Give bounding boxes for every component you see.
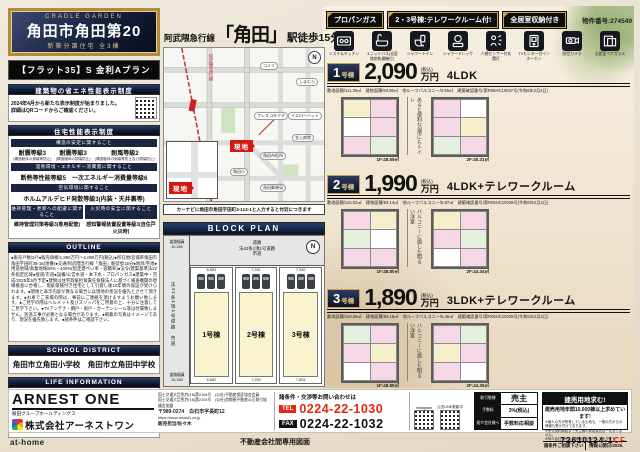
energy-section-body: 2024年4月から新たな表示制度が始まりました。 詳細はQRコードからご確認くだ…	[8, 95, 160, 122]
flat35-banner: 【フラット35】S 金利Aプラン	[8, 60, 160, 80]
car-icon	[307, 274, 315, 289]
athome-logo: at-home	[10, 438, 45, 447]
floorplan-1f	[341, 209, 399, 269]
floorplan-1f	[341, 97, 399, 157]
feature-badges-row: プロパンガス 2・3号棟:テレワークルーム付! 全居室収納付き 物件番号:274…	[327, 12, 632, 28]
car-icon	[207, 274, 215, 289]
lot-3: 7,340 3号棟 7,804	[279, 267, 322, 384]
shower-toilet-icon	[410, 31, 430, 51]
road-width-bottom: 道路幅員 10,260	[165, 373, 189, 382]
north-arrow-icon: N	[306, 240, 320, 254]
unit-1-badge: 1号棟	[327, 63, 360, 82]
map-landmark: フレスコキクチ	[254, 112, 288, 120]
company-address: 〒989-0274 白石市字長町12	[158, 409, 270, 416]
unit-3-note: バルコニーに面した明るい洋室	[407, 323, 423, 381]
company-group: 飯田グループホールディングス	[12, 411, 154, 417]
unit-1-area-2f: 2F:45.31㎡	[431, 157, 489, 163]
contact-block: 諸条件・交渉等お問い合わせは TEL 0224-22-1030 FAX 0224…	[274, 392, 410, 430]
unit-2-listing: 2号棟 1,990 (税込) 万円 4LDK+テレワークルーム 敷地面積/115…	[327, 174, 630, 275]
broker-value: 手数料応相談	[501, 418, 537, 429]
grade-seismic-2: 耐震等級3	[56, 148, 91, 157]
badge-storage: 全居室収納付き	[503, 12, 566, 28]
page-title: 角田市角田第20	[13, 20, 155, 41]
road-width-top: 道路幅員 10,260	[165, 240, 189, 249]
map-caption: カーナビに角田市角田字田町3-113-1と入力すると付近につきます	[163, 204, 325, 215]
line-label: 公式LINE更新中	[437, 405, 463, 410]
energy-section-header: 建築物の省エネ性能表示制度	[8, 84, 160, 95]
license-line-2: 国土交通大臣免許(16)第2104号 (公社)首都圏不動産公正取引協議会加盟	[158, 398, 270, 409]
sensor-light-icon	[486, 31, 506, 51]
unit-2-header: 2号棟 1,990 (税込) 万円 4LDK+テレワークルーム	[327, 174, 630, 199]
company-logo: ARNEST ONE	[12, 392, 154, 410]
grade-seismic-2-sub: (構造躯体の損傷防止)	[56, 157, 91, 162]
footer-band: ARNEST ONE 飯田グループホールディングス 株式会社アーネストワン 国土…	[8, 389, 632, 433]
tv-interphone-icon	[524, 31, 544, 51]
document-code: 72610124-1CF	[561, 436, 626, 445]
unit-1-listing: 1号棟 2,090 (税込) 万円 4LDK 敷地面積/111.35㎡ 建物面積…	[327, 62, 630, 163]
floorplan-2f	[431, 97, 489, 157]
floorplan-2f	[431, 209, 489, 269]
unit-3-listing: 3号棟 1,890 (税込) 万円 3LDK+テレワークルーム 敷地面積/119…	[327, 288, 630, 389]
property-title-box: CRADLE GARDEN 角田市角田第20 新築分譲住宅 全3棟	[8, 8, 160, 56]
rail-line-label: 阿武隈急行線	[208, 54, 214, 81]
map-landmark: しまむら	[296, 78, 318, 86]
fee-label: 手数料	[475, 405, 501, 416]
grade-maintenance: 維持管理対策等級3(専用配管)	[11, 220, 83, 236]
grade-insulation: 断熱等性能等級5 一次エネルギー消費量等級6	[11, 172, 157, 183]
outline-text: ●販売戸数/3戸●販売価格/1,890万円〜2,090万円(税込)●所在地/宮城…	[11, 255, 157, 339]
broker-label: 紹介会社様へ	[475, 418, 501, 429]
unit-3-floorplans: 1F:48.80㎡ バルコニーに面した明るい洋室 2F:44.35㎡	[327, 323, 630, 389]
badge-telework: 2・3号棟:テレワークルーム付!	[388, 12, 498, 28]
unit-1-header: 1号棟 2,090 (税込) 万円 4LDK	[327, 62, 630, 87]
map-landmark: コメリ	[260, 62, 278, 70]
unit-1-layout: 4LDK	[443, 70, 478, 82]
company-legal-block: 国土交通大臣免許(16)第2106号 (公社)不動産保証協会会員 国土交通大臣免…	[158, 392, 270, 430]
fax-label: FAX	[279, 420, 297, 428]
performance-sub4b: 火災時の安全に関すること	[85, 205, 157, 219]
unit-1-area-1f: 1F:48.65㎡	[341, 157, 399, 163]
instagram-label: Instagram	[414, 406, 434, 410]
lot-dim-bottom: 7,250	[236, 378, 277, 383]
car-icon	[297, 274, 305, 289]
lot-building-label: 2号棟	[239, 292, 274, 377]
qr-block: Instagram 公式LINE更新中	[414, 392, 470, 430]
rail-line-name: 阿武隈急行線	[164, 32, 215, 47]
fee-value: 3%(税込)	[501, 405, 537, 416]
performance-sub4a: 維持管理・更新への配慮に関すること	[11, 205, 83, 219]
land-recruit-box: 建売用地求む! 建売用地年間10,000棟以上求めています! ※個人の方が所有し…	[542, 392, 628, 430]
unit-3-layout: 3LDK+テレワークルーム	[443, 292, 576, 308]
pair-glass-icon	[600, 31, 620, 51]
car-icon	[262, 274, 270, 289]
tel-label: TEL	[279, 405, 296, 413]
tel-number: 0224-22-1030	[299, 402, 383, 416]
station-headline: 阿武隈急行線 「角田」 駅徒歩15分	[164, 20, 339, 47]
lot-building-label: 1号棟	[194, 292, 229, 377]
floorplan-1f	[341, 323, 399, 383]
line-qr-icon	[440, 410, 460, 430]
life-section-header: LIFE INFORMATION	[8, 377, 160, 388]
unit-bath-icon	[372, 31, 392, 51]
sales-staff: 販売担当/佐々木	[158, 421, 270, 427]
performance-sub1: 構造の安定に関すること	[11, 139, 157, 147]
page-subtitle: 新築分譲住宅 全3棟	[13, 41, 155, 50]
badge-propane: プロパンガス	[327, 12, 383, 28]
car-icon	[252, 274, 260, 289]
school-names: 角田市立角田小学校 角田市立角田中学校	[8, 356, 160, 374]
access-map: 阿武隈急行線 コメリ しまむら フレスコキクチ イエローハット 角田市役所 金上…	[163, 47, 325, 202]
qr-code-icon	[135, 97, 157, 119]
company-name: 株式会社アーネストワン	[25, 418, 134, 432]
instagram-qr-icon	[414, 410, 434, 430]
grade-seismic-1: 耐震等級3	[13, 148, 51, 157]
recruit-lead: 建売用地年間10,000棟以上求めています!	[543, 405, 627, 420]
map-landmark: 角田市役所	[260, 152, 286, 160]
unit-1-price: 2,090	[364, 62, 417, 82]
property-number: 物件番号:274549	[582, 15, 632, 25]
unit-1-price-unit: (税込) 万円	[421, 68, 439, 82]
left-column: CRADLE GARDEN 角田市角田第20 新築分譲住宅 全3棟 【フラット3…	[8, 8, 160, 438]
system-kitchen-icon	[334, 31, 354, 51]
unit-2-price-unit: (税込) 万円	[421, 180, 439, 194]
grade-fire: 感知警報装置設置等級3(自住戸火災時)	[85, 220, 157, 236]
outline-section-header: OUTLINE	[8, 242, 160, 253]
fax-number: 0224-22-1032	[300, 417, 384, 431]
car-icon	[242, 274, 250, 289]
lot-dim-bottom: 7,804	[280, 378, 321, 383]
lot-building-label: 3号棟	[283, 292, 318, 377]
feature-kitchen: システムキッチン	[327, 31, 361, 61]
unit-2-details: 敷地面積/115.02㎡ 建物面積/93.14㎡ 他ルーフバルコニー/5.87㎡…	[327, 199, 630, 207]
car-icon	[287, 274, 295, 289]
unit-3-price-unit: (税込) 万円	[421, 294, 439, 308]
blockplan-header: BLOCK PLAN	[163, 222, 325, 235]
unit-3-header: 3号棟 1,890 (税込) 万円 3LDK+テレワークルーム	[327, 288, 630, 313]
dealer-type-value: 売主	[501, 393, 537, 404]
feature-sensor-light: 人感センサー付玄関灯	[479, 31, 513, 61]
internal-use-note: 不動産会社間専用図面	[240, 437, 310, 447]
unit-2-area-1f: 1F:48.80㎡	[341, 269, 399, 275]
inset-road	[167, 172, 217, 178]
performance-section-body: 構造の安定に関すること 耐震等級3 (構造躯体の倒壊等防止) 耐震等級3 (構造…	[8, 136, 160, 239]
company-block: ARNEST ONE 飯田グループホールディングス 株式会社アーネストワン	[12, 392, 154, 430]
car-icon	[217, 274, 225, 289]
school-section-header: SCHOOL DISTRICT	[8, 345, 160, 356]
feature-security-camera: 防犯カメラ	[555, 31, 589, 61]
dealer-type-label: 取引態様	[475, 393, 501, 404]
map-landmark: 角田小	[230, 168, 248, 176]
grade-wind-sub: (構造躯体の倒壊等防止及び損傷防止)	[95, 157, 155, 162]
lot-1: 6,883 1号棟 6,882	[190, 267, 233, 384]
map-landmark: イエローハット	[288, 112, 322, 120]
floorplan-2f	[431, 323, 489, 383]
grade-seismic-1-sub: (構造躯体の倒壊等防止)	[13, 157, 51, 162]
grade-wind: 耐風等級2	[95, 148, 155, 157]
unit-3-details: 敷地面積/119.06㎡ 建物面積/93.15㎡ 他ルーフバルコニー/5.46㎡…	[327, 313, 630, 321]
lot-2: 7,261 2号棟 7,250	[235, 267, 278, 384]
unit-2-area-2f: 2F:44.34㎡	[431, 269, 489, 275]
unit-2-note: バルコニーに面した明るい洋室	[407, 209, 423, 267]
feature-shower-toilet: シャワートイレ	[403, 31, 437, 61]
map-inset: 現地	[166, 141, 218, 199]
unit-3-badge: 3号棟	[327, 289, 360, 308]
map-landmark: 金上病院	[292, 134, 314, 142]
site-marker-inset: 現地	[169, 182, 192, 194]
road-left-label: 法42条1項1号道路 市道	[170, 282, 176, 347]
station-name: 「角田」	[215, 20, 287, 47]
shower-dresser-icon	[448, 31, 468, 51]
unit-1-details: 敷地面積/111.35㎡ 建物面積/93.96㎡ 他ルーフバルコニー/4.56㎡…	[327, 87, 630, 95]
unit-3-price: 1,890	[364, 288, 417, 308]
car-icon	[197, 274, 205, 289]
security-camera-icon	[562, 31, 582, 51]
grade-air: ホルムアルデヒド発散等級3(内装・天井裏等)	[11, 193, 157, 204]
unit-2-price: 1,990	[364, 174, 417, 194]
compass-icon: N	[308, 51, 321, 64]
unit-1-floorplans: 1F:48.65㎡ あると便利な2階にもトイレ 2F:45.31㎡	[327, 97, 630, 163]
contact-heading: 諸条件・交渉等お問い合わせは	[279, 393, 405, 401]
blockplan-road-top: 道路 法42条1項1号道路 市道	[190, 236, 324, 266]
lot-dim-bottom: 6,882	[191, 378, 232, 383]
performance-sub2: 温熱環境・エネルギー消費量に関すること	[11, 163, 157, 171]
dealer-table: 取引態様 売主 手数料 3%(税込) 紹介会社様へ 手数料応相談	[474, 392, 538, 430]
blockplan-road-left: 道路幅員 10,260 法42条1項1号道路 市道 道路幅員 10,260	[164, 236, 190, 386]
unit-2-badge: 2号棟	[327, 175, 360, 194]
recruit-title: 建売用地求む!	[543, 393, 627, 405]
block-plan: 道路 法42条1項1号道路 市道 道路幅員 10,260 法42条1項1号道路 …	[163, 235, 325, 387]
feature-tv-interphone: TVモニター付インターホン	[517, 31, 551, 61]
energy-text: 2024年4月から新たな表示制度が始まりました。 詳細はQRコードからご確認くだ…	[11, 101, 132, 116]
performance-section-header: 住宅性能表示制度	[8, 125, 160, 136]
feature-pair-glass: 全居室ペアガラス	[593, 31, 627, 61]
equipment-icons-row: システムキッチン ユニットバス(浴室換気乾燥機付) シャワートイレ シャワードレ…	[327, 31, 627, 61]
map-landmark: 角田郵便局	[260, 184, 286, 192]
feature-shower-dresser: シャワードレッサー	[441, 31, 475, 61]
feature-unitbath: ユニットバス(浴室換気乾燥機付)	[365, 31, 399, 61]
performance-sub3: 空気環境に関すること	[11, 184, 157, 192]
unit-1-note: あると便利な2階にもトイレ	[407, 97, 423, 155]
unit-2-floorplans: 1F:48.80㎡ バルコニーに面した明るい洋室 2F:44.34㎡	[327, 209, 630, 275]
site-marker: 現地	[230, 140, 253, 152]
unit-2-layout: 4LDK+テレワークルーム	[443, 178, 576, 194]
company-cube-icon	[12, 419, 23, 430]
